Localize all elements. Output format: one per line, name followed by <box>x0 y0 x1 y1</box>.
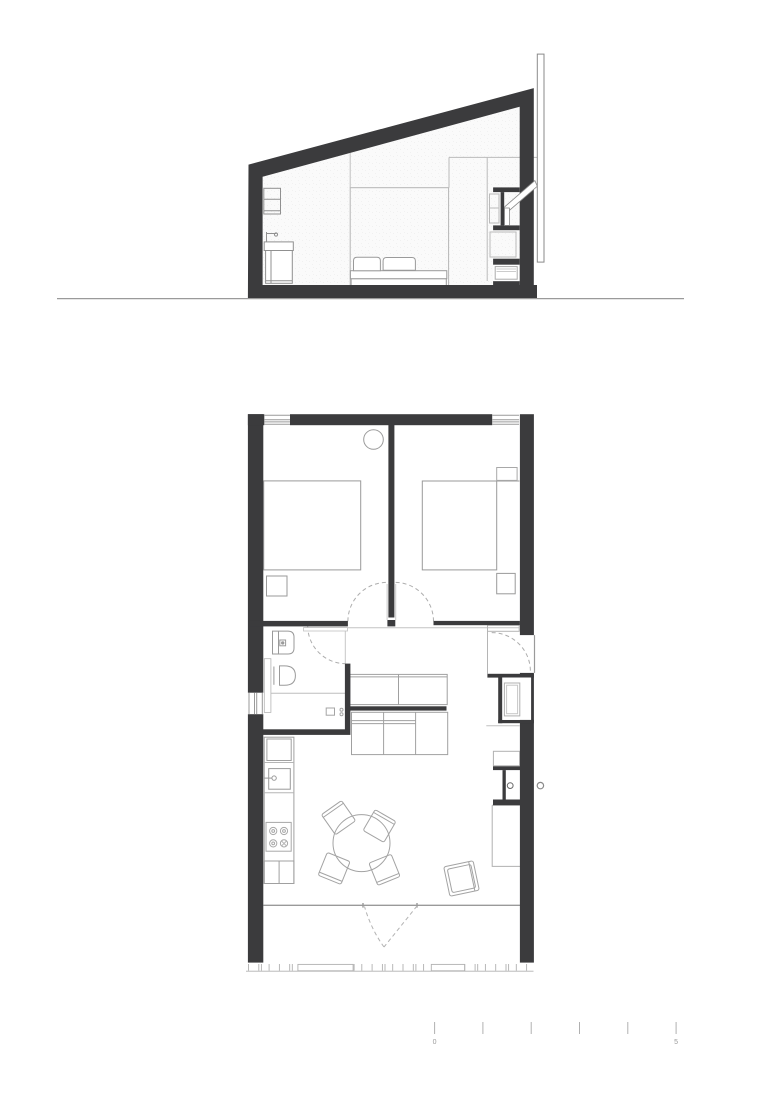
svg-text:5: 5 <box>674 1039 678 1046</box>
svg-text:0: 0 <box>433 1039 437 1046</box>
